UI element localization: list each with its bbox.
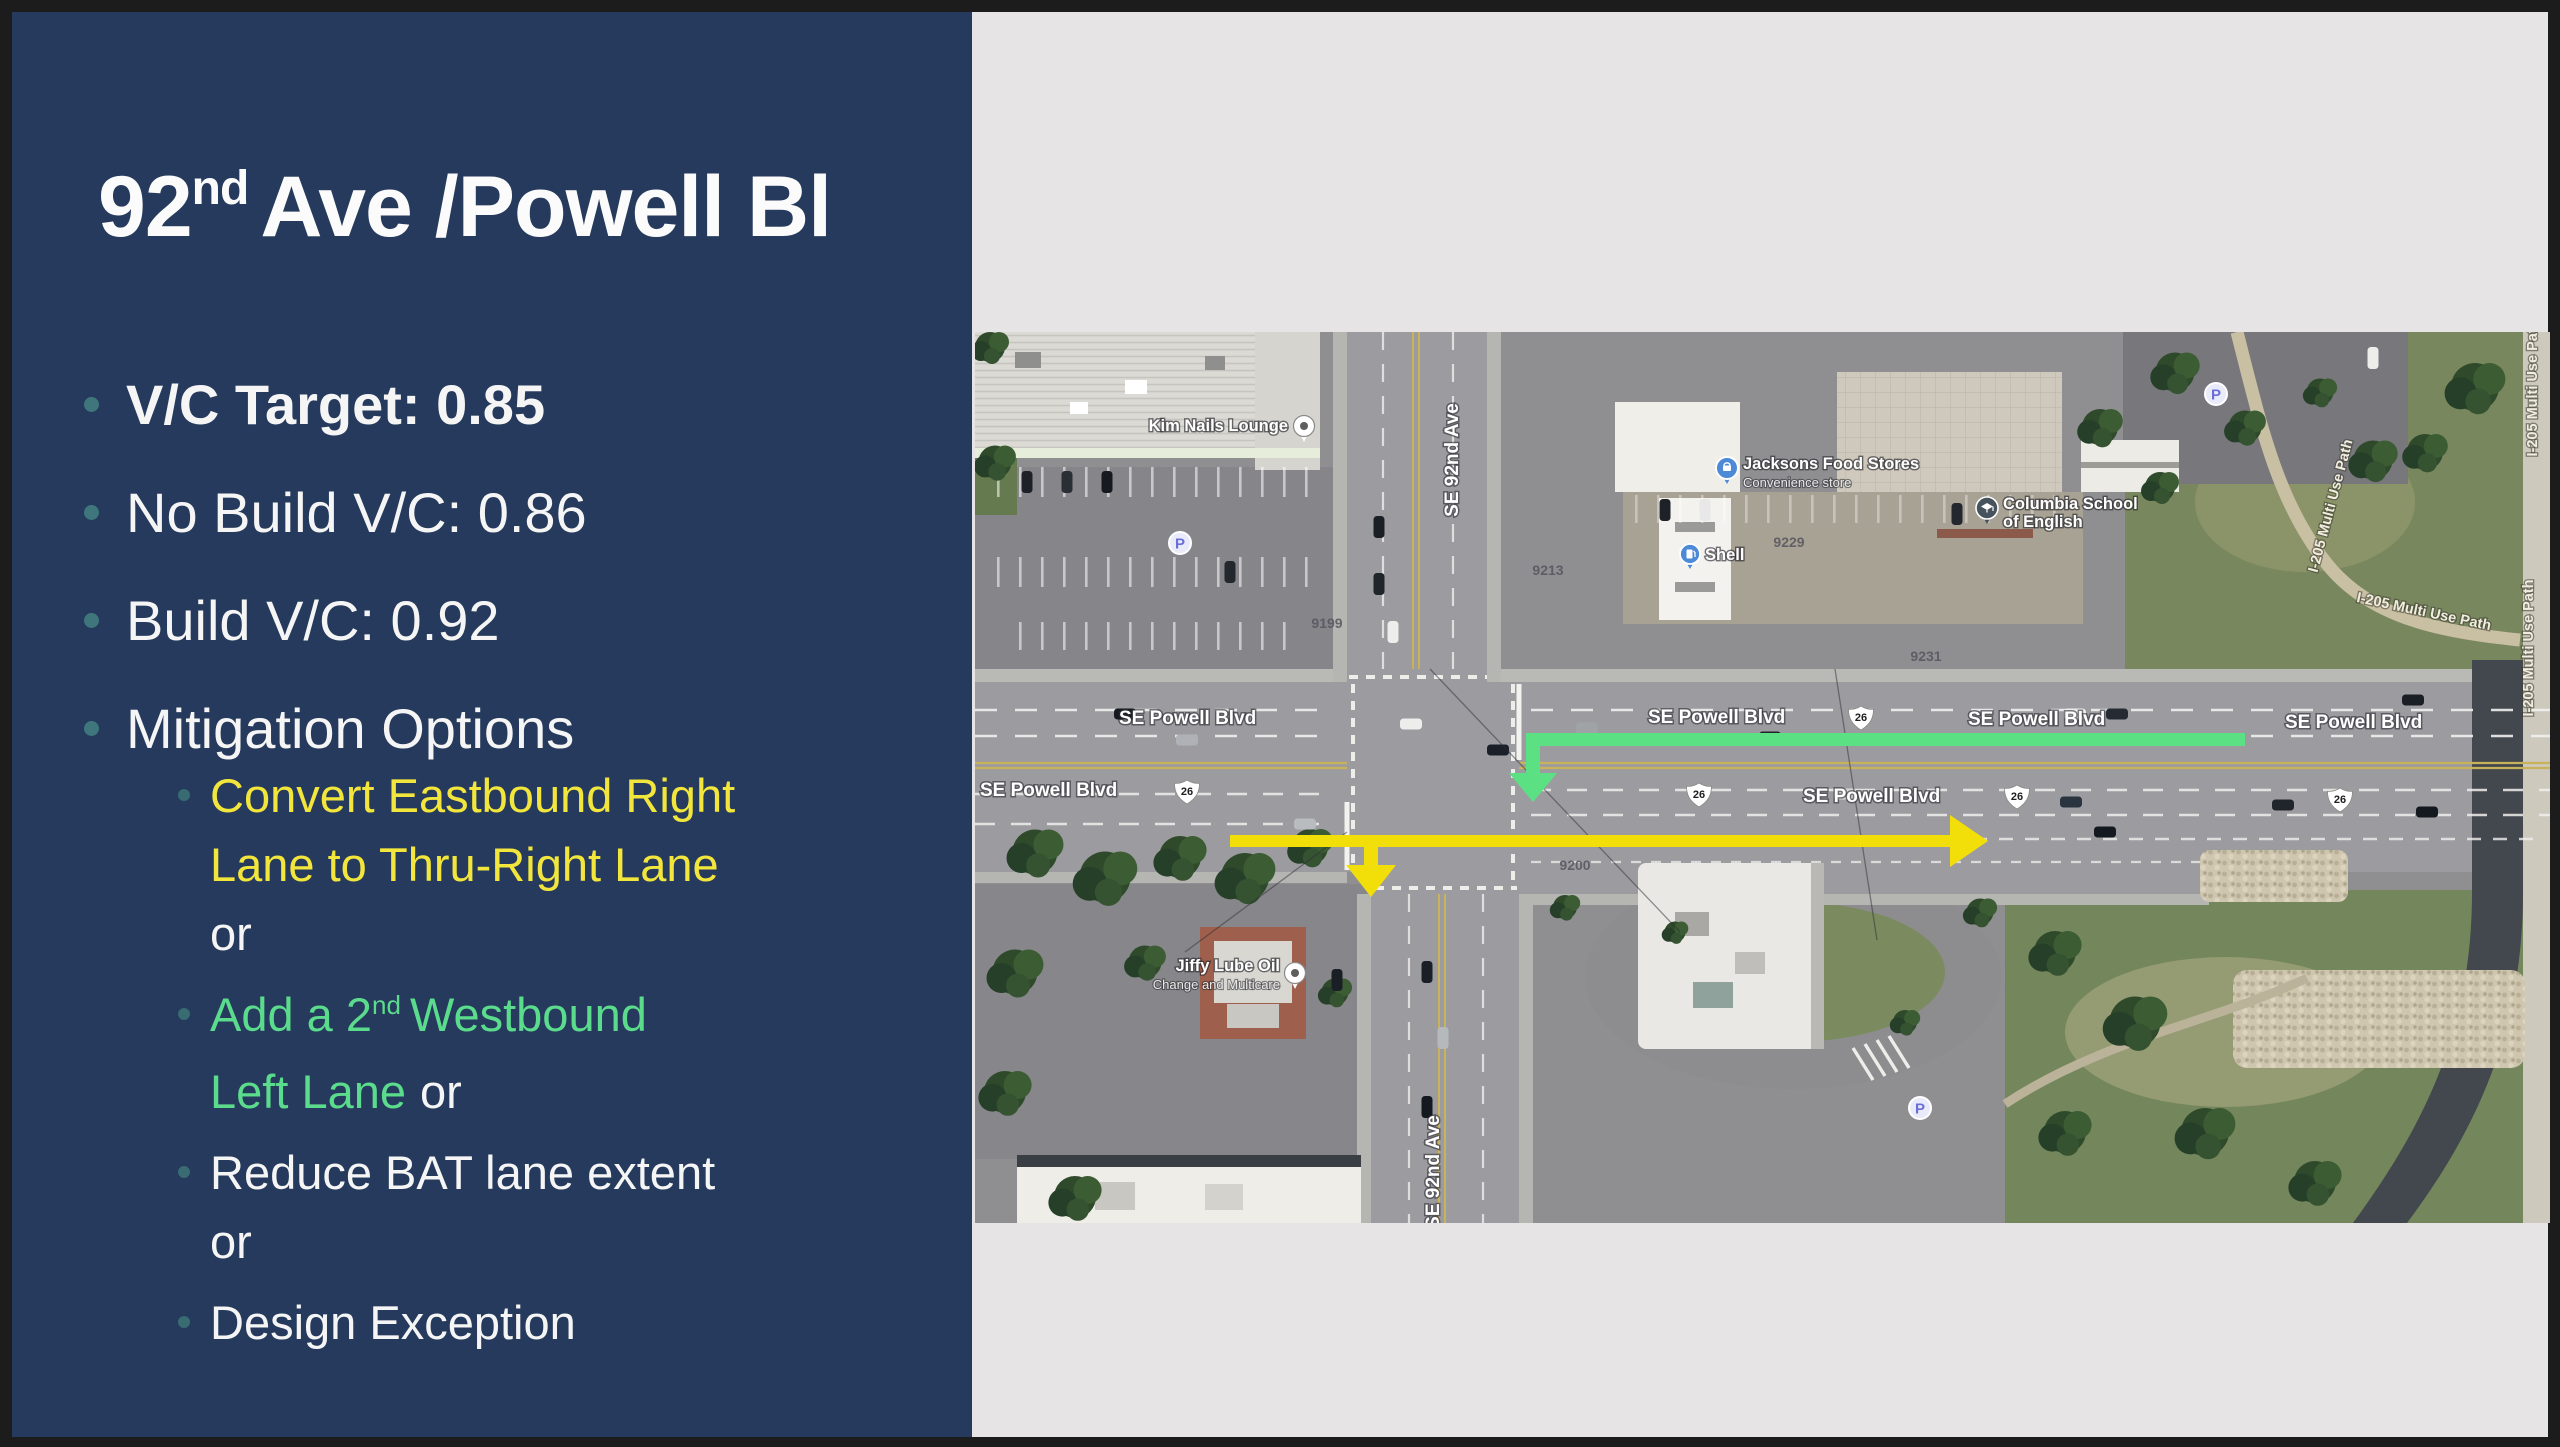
option-line-post: Westbound	[410, 988, 647, 1041]
bullet-list: V/C Target: 0.85 No Build V/C: 0.86 Buil…	[76, 350, 936, 782]
house-number: 9229	[1773, 534, 1804, 550]
parking-marker: P	[1169, 532, 1191, 554]
map-panel: SE Powell Blvd SE Powell Blvd SE Powell …	[972, 12, 2548, 1437]
option-conjunction: or	[210, 1207, 715, 1276]
mitigation-options-list: Convert Eastbound Right Lane to Thru-Rig…	[178, 761, 878, 1369]
title-ordinal: nd	[192, 162, 249, 215]
path-label-i205: I-205 Multi Use Path	[2521, 580, 2537, 717]
page-title: 92ndAve /Powell Bl	[98, 158, 831, 257]
parking-marker: P	[2205, 383, 2227, 405]
title-number: 92	[98, 159, 192, 255]
sub-bullet-dot-icon	[178, 1008, 190, 1020]
bullet-label: No Build V/C: 0.86	[126, 480, 587, 545]
svg-text:Jiffy Lube Oil: Jiffy Lube Oil	[1175, 957, 1280, 975]
svg-text:P: P	[1175, 536, 1185, 553]
street-label-92nd-ave: SE 92nd Ave	[1423, 1115, 1444, 1223]
text-panel: 92ndAve /Powell Bl V/C Target: 0.85 No B…	[12, 12, 972, 1437]
bullet-build: Build V/C: 0.92	[76, 566, 936, 674]
sub-bullet-dot-icon	[178, 1316, 190, 1328]
option-line-ordinal: nd	[372, 990, 401, 1020]
street-label-powell: SE Powell Blvd	[2285, 712, 2422, 733]
option-add-westbound-left: Add a 2ndWestbound Left Laneor	[178, 980, 878, 1126]
title-rest: Ave /Powell Bl	[260, 159, 831, 255]
option-line: Design Exception	[210, 1288, 576, 1357]
bullet-dot-icon	[84, 397, 99, 412]
bullet-label: Build V/C: 0.92	[126, 588, 500, 653]
street-label-powell: SE Powell Blvd	[1119, 708, 1256, 729]
svg-text:26: 26	[1693, 789, 1705, 801]
bullet-dot-icon	[84, 505, 99, 520]
svg-text:Convenience store: Convenience store	[1743, 475, 1851, 490]
sub-bullet-dot-icon	[178, 1166, 190, 1178]
option-line-pre: Add a 2	[210, 988, 372, 1041]
street-label-92nd-ave: SE 92nd Ave	[1442, 403, 1463, 517]
house-number: 9200	[1559, 857, 1590, 873]
option-line: Reduce BAT lane extent	[210, 1138, 715, 1207]
option-line: Lane to Thru-Right Lane	[210, 830, 735, 899]
svg-text:P: P	[2211, 387, 2221, 404]
svg-text:Kim Nails Lounge: Kim Nails Lounge	[1149, 417, 1288, 435]
option-design-exception: Design Exception	[178, 1288, 878, 1357]
street-label-powell: SE Powell Blvd	[1803, 786, 1940, 807]
option-conjunction: or	[210, 899, 735, 968]
house-number: 9199	[1311, 615, 1342, 631]
parking-marker: P	[1909, 1097, 1931, 1119]
svg-text:26: 26	[2011, 791, 2023, 803]
option-line-main: Left Lane	[210, 1065, 406, 1118]
slide: 92ndAve /Powell Bl V/C Target: 0.85 No B…	[12, 12, 2548, 1437]
bullet-dot-icon	[84, 721, 99, 736]
house-number: 9231	[1910, 648, 1941, 664]
bullet-no-build: No Build V/C: 0.86	[76, 458, 936, 566]
svg-text:Columbia School: Columbia School	[2003, 495, 2138, 513]
street-label-powell: SE Powell Blvd	[980, 780, 1117, 801]
option-reduce-bat-lane: Reduce BAT lane extent or	[178, 1138, 878, 1276]
svg-text:26: 26	[1855, 712, 1867, 724]
bullet-label: V/C Target: 0.85	[126, 372, 545, 437]
option-conjunction: or	[420, 1065, 462, 1118]
bullet-label: Mitigation Options	[126, 696, 574, 761]
sub-bullet-dot-icon	[178, 789, 190, 801]
street-label-powell: SE Powell Blvd	[1968, 709, 2105, 730]
aerial-photo: SE Powell Blvd SE Powell Blvd SE Powell …	[975, 332, 2550, 1223]
svg-text:Change and Multicare: Change and Multicare	[1153, 977, 1280, 992]
svg-text:26: 26	[2334, 794, 2346, 806]
option-line: Add a 2ndWestbound	[210, 980, 647, 1057]
svg-text:P: P	[1915, 1101, 1925, 1118]
svg-text:Jacksons Food Stores: Jacksons Food Stores	[1743, 455, 1919, 473]
option-line: Left Laneor	[210, 1057, 647, 1126]
street-label-powell: SE Powell Blvd	[1648, 707, 1785, 728]
svg-text:of English: of English	[2003, 513, 2083, 531]
aerial-map-svg: SE Powell Blvd SE Powell Blvd SE Powell …	[975, 332, 2550, 1223]
house-number: 9213	[1532, 562, 1563, 578]
slide-canvas: 92ndAve /Powell Bl V/C Target: 0.85 No B…	[0, 0, 2560, 1447]
bullet-dot-icon	[84, 613, 99, 628]
path-label-i205: I-205 Multi Use Path	[2525, 332, 2541, 456]
option-line: Convert Eastbound Right	[210, 761, 735, 830]
svg-text:26: 26	[1181, 786, 1193, 798]
svg-text:Shell: Shell	[1705, 546, 1744, 564]
bullet-vc-target: V/C Target: 0.85	[76, 350, 936, 458]
option-convert-eastbound: Convert Eastbound Right Lane to Thru-Rig…	[178, 761, 878, 968]
